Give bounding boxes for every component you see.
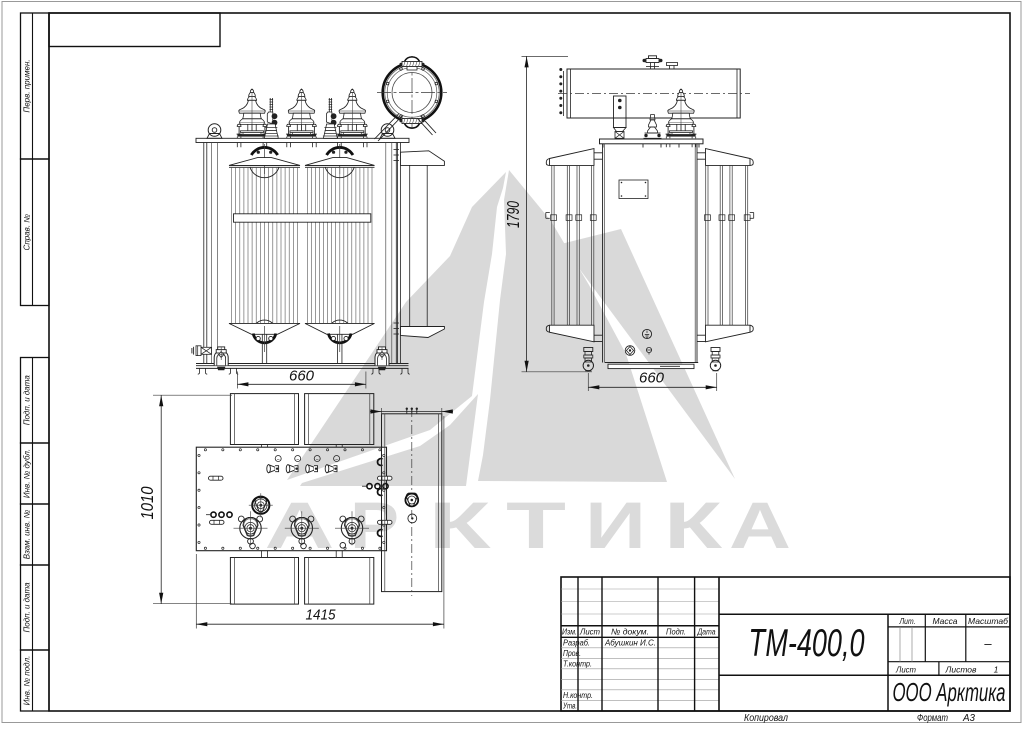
svg-text:Взам. инв. №: Взам. инв. № [23, 509, 32, 559]
svg-text:Подп.: Подп. [666, 627, 686, 637]
svg-text:Изм.: Изм. [562, 627, 577, 637]
svg-text:Подп. и дата: Подп. и дата [23, 375, 32, 426]
svg-text:Абушкин И.С.: Абушкин И.С. [604, 637, 656, 647]
svg-text:Т: Т [506, 488, 566, 562]
svg-text:Лист: Лист [579, 627, 600, 637]
svg-text:Листов: Листов [944, 665, 977, 675]
svg-text:Инв. № подл.: Инв. № подл. [23, 656, 32, 706]
svg-text:№ докум.: № докум. [611, 627, 649, 637]
svg-text:Н.контр.: Н.контр. [563, 690, 593, 700]
svg-text:Формат: Формат [917, 713, 948, 724]
svg-text:660: 660 [289, 368, 315, 385]
svg-text:Пров.: Пров. [563, 648, 581, 658]
svg-text:ТМ-400,0: ТМ-400,0 [749, 622, 865, 665]
svg-text:Перв. примен.: Перв. примен. [23, 59, 32, 112]
svg-text:Инв. № дубл.: Инв. № дубл. [23, 449, 32, 498]
svg-text:Масса: Масса [933, 616, 958, 626]
svg-text:1010: 1010 [137, 486, 157, 519]
svg-text:660: 660 [639, 370, 665, 387]
svg-text:Утв.: Утв. [562, 700, 577, 710]
svg-text:А3: А3 [962, 713, 975, 724]
svg-text:Справ. №: Справ. № [23, 214, 32, 251]
svg-text:ООО Арктика: ООО Арктика [893, 677, 1006, 707]
svg-text:Масштаб: Масштаб [968, 616, 1009, 626]
svg-text:Копировал: Копировал [744, 713, 788, 724]
svg-text:К: К [429, 488, 492, 562]
svg-text:А: А [729, 488, 791, 562]
svg-text:–: – [983, 636, 992, 651]
svg-text:Разраб.: Разраб. [563, 637, 590, 647]
svg-text:1415: 1415 [306, 607, 337, 624]
svg-text:Лит.: Лит. [899, 616, 916, 626]
svg-text:К: К [664, 488, 723, 562]
svg-text:И: И [585, 488, 646, 562]
svg-text:1790: 1790 [503, 201, 523, 228]
svg-text:1: 1 [994, 665, 999, 675]
svg-text:Лист: Лист [895, 665, 916, 675]
svg-text:Дата: Дата [697, 627, 716, 637]
svg-text:Подп. и дата: Подп. и дата [23, 582, 32, 633]
svg-text:Т.контр.: Т.контр. [563, 658, 592, 668]
